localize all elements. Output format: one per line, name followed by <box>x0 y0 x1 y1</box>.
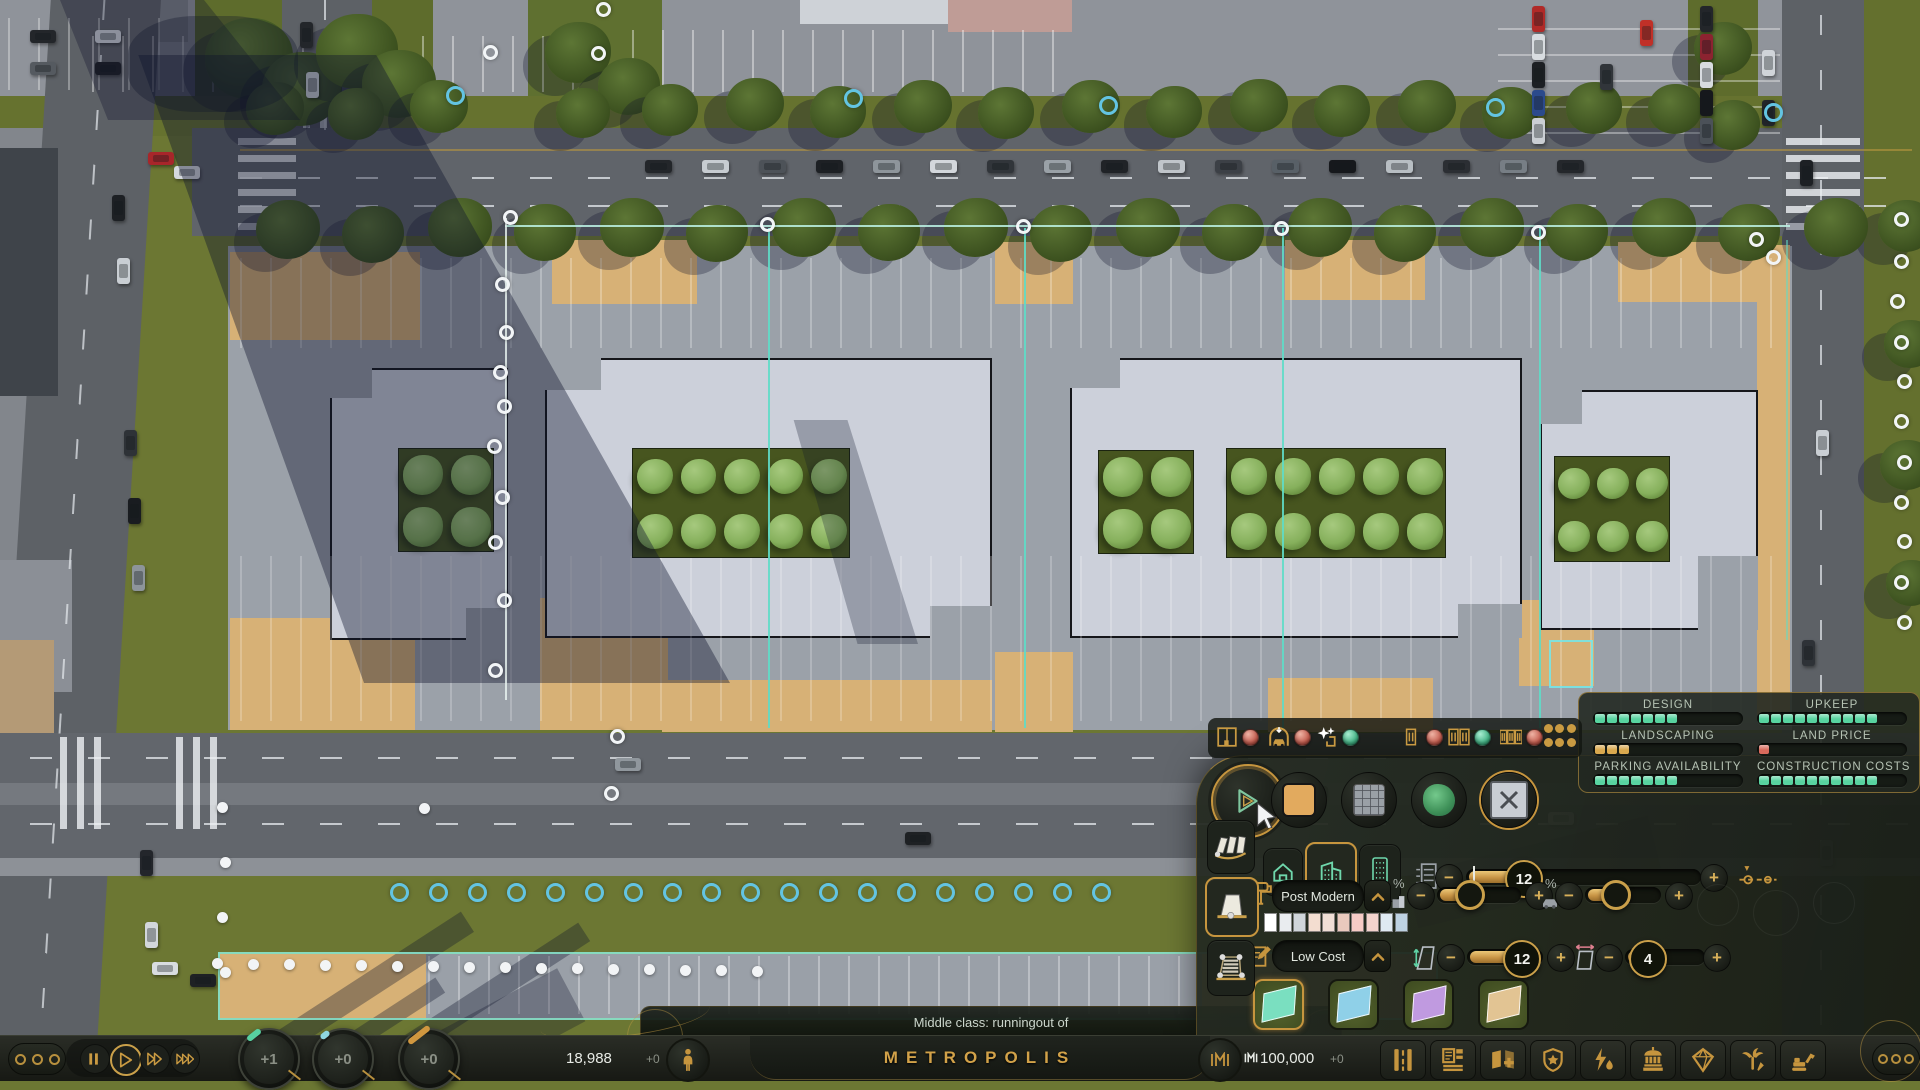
landmarks-button[interactable] <box>1680 1040 1726 1080</box>
design-minus-button[interactable]: − <box>1407 882 1435 910</box>
red-toggle-indicator <box>1242 729 1259 746</box>
toolbar-option-plot[interactable] <box>1216 726 1259 748</box>
stat-land-price: LAND PRICE <box>1757 730 1907 756</box>
parked-car <box>1443 160 1470 173</box>
rate-knob[interactable]: +0 <box>312 1028 374 1090</box>
public-safety-button[interactable] <box>1530 1040 1576 1080</box>
bush-icon <box>637 514 673 550</box>
public-safety-icon <box>1540 1047 1566 1073</box>
floors-slider[interactable] <box>1466 869 1701 885</box>
roads-button[interactable] <box>1380 1040 1426 1080</box>
node-handle-white[interactable] <box>493 365 508 380</box>
node-handle-cyan[interactable] <box>780 883 799 902</box>
node-handle-dot[interactable] <box>752 966 763 977</box>
node-handle-cyan[interactable] <box>897 883 916 902</box>
bush-icon <box>1151 509 1190 548</box>
toolbar-option-building-single[interactable] <box>1400 726 1443 748</box>
palette-swatch[interactable] <box>1351 913 1364 932</box>
node-handle-white[interactable] <box>497 399 512 414</box>
tree-icon <box>642 84 698 136</box>
apps-grid-dot-icon <box>1567 724 1576 733</box>
center-line <box>240 149 1912 151</box>
density-minus-button[interactable]: − <box>1437 944 1465 972</box>
parked-car <box>1557 160 1584 173</box>
node-handle-white[interactable] <box>1749 232 1764 247</box>
left-menu-button[interactable] <box>8 1043 66 1075</box>
zoning-icon <box>1440 1047 1466 1073</box>
construction-icon <box>1790 1047 1816 1073</box>
apps-grid-button[interactable] <box>1544 724 1576 750</box>
currency-icon <box>1210 1052 1230 1068</box>
node-handle-dot[interactable] <box>392 961 403 972</box>
node-handle-white[interactable] <box>1897 615 1912 630</box>
apps-grid-dot-icon <box>1544 724 1553 733</box>
plot-icon <box>1216 726 1238 748</box>
car <box>306 72 319 98</box>
bush-icon <box>1231 458 1267 494</box>
car <box>1700 118 1713 144</box>
construction-button[interactable] <box>1780 1040 1826 1080</box>
node-handle-dot[interactable] <box>644 964 655 975</box>
parked-car <box>1044 160 1071 173</box>
stat-label: CONSTRUCTION COSTS <box>1757 761 1907 773</box>
node-handle-white[interactable] <box>604 786 619 801</box>
stat-label: LANDSCAPING <box>1593 730 1743 742</box>
tree-icon <box>978 87 1034 139</box>
parked-car <box>645 160 672 173</box>
bush-icon <box>1275 458 1311 494</box>
tree-icon <box>600 198 664 257</box>
density-value-knob[interactable]: 12 <box>1503 940 1541 978</box>
node-handle-cyan[interactable] <box>975 883 994 902</box>
parked-car <box>1272 160 1299 173</box>
pad-notch <box>1070 358 1120 388</box>
zoning-button[interactable] <box>1430 1040 1476 1080</box>
node-handle-white[interactable] <box>1897 374 1912 389</box>
courtyard-garden <box>1226 448 1446 558</box>
zoning-list-tool-button[interactable] <box>1207 940 1255 996</box>
node-handle-cyan[interactable] <box>936 883 955 902</box>
node-handle-white[interactable] <box>1274 221 1289 236</box>
government-button[interactable] <box>1630 1040 1676 1080</box>
width-minus-button[interactable]: − <box>1595 944 1623 972</box>
plot-boundary-line[interactable] <box>505 225 1790 227</box>
tree-icon <box>1116 198 1180 257</box>
game-screen: { "stats_panel": { "items": [ {"label":"… <box>0 0 1920 1080</box>
plot-boundary-line[interactable] <box>1282 228 1284 728</box>
apps-grid-dot-icon <box>1567 738 1576 747</box>
stat-segment <box>1759 745 1769 754</box>
node-handle-cyan[interactable] <box>1486 98 1505 117</box>
parked-car <box>873 160 900 173</box>
rate-knob[interactable]: +0 <box>398 1028 460 1090</box>
bush-icon <box>1103 457 1142 496</box>
design-percent-label: % <box>1393 876 1405 891</box>
node-handle-cyan[interactable] <box>1099 96 1118 115</box>
toolbar-option-building-double[interactable] <box>1448 726 1491 748</box>
node-handle-cyan[interactable] <box>741 883 760 902</box>
stat-segment <box>1843 714 1853 723</box>
node-handle-dot[interactable] <box>217 912 228 923</box>
cost-dropdown[interactable]: Low Cost <box>1272 940 1364 972</box>
plot-options-toolbar <box>1208 718 1582 758</box>
stat-bar <box>1593 712 1743 725</box>
selection-rect[interactable] <box>1549 640 1593 688</box>
building-triple-icon <box>1500 726 1522 748</box>
city-name-emblem: METROPOLIS <box>750 1036 1210 1080</box>
bush-icon <box>724 459 760 495</box>
width-plus-button[interactable]: + <box>1703 944 1731 972</box>
plot-width-icon <box>1573 942 1597 974</box>
bush-icon <box>1231 513 1267 549</box>
parked-car <box>1215 160 1242 173</box>
apps-grid-dot-icon <box>1544 738 1553 747</box>
node-handle-cyan[interactable] <box>663 883 682 902</box>
stat-segment <box>1855 776 1865 785</box>
pad-notch <box>330 368 372 398</box>
car <box>1532 6 1545 32</box>
stat-segment <box>1771 714 1781 723</box>
car <box>1532 34 1545 60</box>
bush-icon <box>681 459 717 495</box>
car <box>1762 50 1775 76</box>
node-handle-dot[interactable] <box>716 965 727 976</box>
plot-swatch-button[interactable] <box>1328 979 1379 1030</box>
concrete-texture-button[interactable] <box>1341 772 1397 828</box>
decoration-icon <box>1316 726 1338 748</box>
build-menu-tiles <box>1380 1036 1840 1081</box>
node-handle-cyan[interactable] <box>819 883 838 902</box>
single-plot-tool-button[interactable] <box>1205 877 1259 937</box>
node-handle-white[interactable] <box>1766 250 1781 265</box>
bush-icon <box>1636 521 1668 553</box>
dot-icon <box>32 1054 43 1065</box>
stat-label: UPKEEP <box>1757 699 1907 711</box>
stat-segment <box>1831 776 1841 785</box>
tree-icon <box>428 198 492 257</box>
plot-boundary-line[interactable] <box>768 228 770 728</box>
palette-swatch[interactable] <box>1293 913 1306 932</box>
node-handle-white[interactable] <box>497 593 512 608</box>
bush-icon <box>1558 521 1590 553</box>
node-handle-white[interactable] <box>1897 534 1912 549</box>
rate-knob[interactable]: +1 <box>238 1028 300 1090</box>
stat-bar <box>1757 712 1907 725</box>
building-double-icon <box>1448 726 1470 748</box>
node-handle-cyan[interactable] <box>1092 883 1111 902</box>
node-handle-white[interactable] <box>495 277 510 292</box>
stripes-v <box>240 556 1785 721</box>
bush-icon <box>451 455 490 494</box>
green-toggle-indicator <box>1474 729 1491 746</box>
node-handle-cyan[interactable] <box>585 883 604 902</box>
node-handle-dot[interactable] <box>320 960 331 971</box>
car <box>190 974 216 987</box>
node-handle-white[interactable] <box>1894 335 1909 350</box>
node-handle-cyan[interactable] <box>546 883 565 902</box>
stat-segment <box>1819 714 1829 723</box>
car <box>1640 20 1653 46</box>
node-handle-cyan[interactable] <box>390 883 409 902</box>
landscaping-button[interactable] <box>1730 1040 1776 1080</box>
stat-upkeep: UPKEEP <box>1757 699 1907 725</box>
bush-icon <box>768 459 804 495</box>
node-handle-cyan[interactable] <box>844 89 863 108</box>
parked-car <box>816 160 843 173</box>
stat-segment <box>1655 776 1665 785</box>
plot-swatch-button[interactable] <box>1253 979 1304 1030</box>
plot-boundary-line[interactable] <box>1024 228 1026 728</box>
node-handle-dot[interactable] <box>680 965 691 976</box>
toolbar-option-building-triple[interactable] <box>1500 726 1543 748</box>
bush-icon <box>811 514 847 550</box>
stat-design: DESIGN <box>1593 699 1743 725</box>
node-handle-cyan[interactable] <box>507 883 526 902</box>
tree-icon <box>328 88 384 140</box>
pause-icon <box>86 1050 104 1068</box>
stat-segment <box>1855 714 1865 723</box>
clear-texture-button[interactable] <box>1481 772 1537 828</box>
car <box>1700 6 1713 32</box>
node-handle-white[interactable] <box>1894 414 1909 429</box>
grass-texture-button[interactable] <box>1411 772 1467 828</box>
bush-icon <box>1407 513 1443 549</box>
palette-swatch[interactable] <box>1264 913 1277 932</box>
node-handle-cyan[interactable] <box>468 883 487 902</box>
building <box>0 148 58 396</box>
stat-segment <box>1843 776 1853 785</box>
palette-swatch[interactable] <box>1380 913 1393 932</box>
landmarks-icon <box>1690 1047 1716 1073</box>
node-handle-white[interactable] <box>1894 212 1909 227</box>
style-dropdown[interactable]: Post Modern <box>1272 880 1364 912</box>
node-handle-cyan[interactable] <box>446 86 465 105</box>
money-button[interactable] <box>1198 1038 1242 1082</box>
parking-minus-button[interactable]: − <box>1555 882 1583 910</box>
stat-segment <box>1795 714 1805 723</box>
bush-icon <box>681 514 717 550</box>
stat-segment <box>1831 714 1841 723</box>
node-handle-cyan[interactable] <box>1764 103 1783 122</box>
stat-bar <box>1757 743 1907 756</box>
node-handle-dot[interactable] <box>464 962 475 973</box>
tree-icon <box>1648 84 1702 134</box>
parked-car <box>1386 160 1413 173</box>
concrete-tile-icon <box>1353 784 1385 816</box>
stat-segment <box>1771 776 1781 785</box>
node-handle-dot[interactable] <box>217 802 228 813</box>
stat-segment <box>1783 714 1793 723</box>
red-toggle-indicator <box>1526 729 1543 746</box>
node-handle-white[interactable] <box>1531 225 1546 240</box>
node-handle-white[interactable] <box>499 325 514 340</box>
node-handle-white[interactable] <box>1894 575 1909 590</box>
multi-plot-tool-button[interactable] <box>1207 820 1255 874</box>
palette-swatch[interactable] <box>1395 913 1408 932</box>
car <box>1800 160 1813 186</box>
toolbar-option-decoration[interactable] <box>1316 726 1359 748</box>
plot-swatch-button[interactable] <box>1403 979 1454 1030</box>
stat-segment <box>1759 776 1769 785</box>
stat-segment <box>1667 714 1677 723</box>
pad-notch <box>545 358 601 390</box>
node-handle-dot[interactable] <box>419 803 430 814</box>
utilities-button[interactable] <box>1580 1040 1626 1080</box>
node-handle-cyan[interactable] <box>702 883 721 902</box>
bush-icon <box>451 507 490 546</box>
toolbar-option-parking[interactable] <box>1268 726 1311 748</box>
car <box>1816 430 1829 456</box>
status-message: Middle class: runningout of <box>914 1015 1069 1030</box>
tree-icon <box>1460 198 1524 257</box>
car <box>148 152 174 165</box>
sand-texture-button[interactable] <box>1271 772 1327 828</box>
building-percent-icon <box>1391 895 1407 909</box>
car <box>112 195 125 221</box>
stat-label: PARKING AVAILABILITY <box>1593 761 1743 773</box>
car <box>1700 62 1713 88</box>
node-handle-white[interactable] <box>1894 495 1909 510</box>
plot-tile-icon <box>1261 985 1296 1023</box>
car <box>1532 90 1545 116</box>
tree-icon <box>1314 85 1370 137</box>
node-handle-white[interactable] <box>1894 254 1909 269</box>
stat-segment <box>1655 714 1665 723</box>
stripes-v <box>240 258 1785 348</box>
node-handle-dot[interactable] <box>536 963 547 974</box>
car <box>140 850 153 876</box>
car <box>128 498 141 524</box>
palette-swatch[interactable] <box>1322 913 1335 932</box>
design-knob[interactable] <box>1455 880 1485 910</box>
node-handle-white[interactable] <box>760 217 775 232</box>
node-handle-cyan[interactable] <box>1053 883 1072 902</box>
tree-icon <box>556 88 610 138</box>
node-handle-white[interactable] <box>503 210 518 225</box>
node-handle-cyan[interactable] <box>429 883 448 902</box>
style-dropdown-chevron-button[interactable] <box>1364 880 1391 912</box>
bush-icon <box>1597 468 1629 500</box>
plot-boundary-line[interactable] <box>1539 228 1541 728</box>
fast-forward-button[interactable] <box>140 1044 170 1074</box>
node-handle-dot[interactable] <box>500 962 511 973</box>
node-handle-dot[interactable] <box>284 959 295 970</box>
node-handle-cyan[interactable] <box>1014 883 1033 902</box>
car <box>152 962 178 975</box>
node-handle-dot[interactable] <box>428 961 439 972</box>
parked-car <box>1158 160 1185 173</box>
fastest-forward-button[interactable] <box>170 1044 200 1074</box>
node-handle-white[interactable] <box>1016 219 1031 234</box>
playback-cluster <box>66 1039 200 1077</box>
palette-swatch[interactable] <box>1366 913 1379 932</box>
car <box>174 166 200 179</box>
density-plus-button[interactable]: + <box>1547 944 1575 972</box>
mouse-pointer-icon <box>1255 802 1279 828</box>
car <box>30 30 56 43</box>
parked-car <box>930 160 957 173</box>
node-handle-dot[interactable] <box>572 963 583 974</box>
node-handle-white[interactable] <box>488 663 503 678</box>
parking-knob[interactable] <box>1601 880 1631 910</box>
courtyard-garden <box>632 448 850 558</box>
stat-segment <box>1643 714 1653 723</box>
stat-segment <box>1595 714 1605 723</box>
node-handle-white[interactable] <box>591 46 606 61</box>
node-handle-white[interactable] <box>495 490 510 505</box>
parking-plus-button[interactable]: + <box>1665 882 1693 910</box>
car <box>1700 90 1713 116</box>
bush-icon <box>1597 521 1629 553</box>
plot-stats-panel: DESIGNUPKEEPLANDSCAPINGLAND PRICEPARKING… <box>1578 692 1920 793</box>
play-button[interactable] <box>110 1044 142 1076</box>
sand-tile-icon <box>1282 783 1316 817</box>
palette-swatch[interactable] <box>1308 913 1321 932</box>
parked-car <box>1101 160 1128 173</box>
plot-swatch-button[interactable] <box>1478 979 1529 1030</box>
palette-swatch[interactable] <box>1337 913 1350 932</box>
stat-segment <box>1867 714 1877 723</box>
width-value-knob[interactable]: 4 <box>1629 940 1667 978</box>
utilities-icon <box>1590 1047 1616 1073</box>
stat-landscaping: LANDSCAPING <box>1593 730 1743 756</box>
tree-icon <box>1146 86 1202 138</box>
plot-tile-icon <box>1486 985 1521 1023</box>
node-handle-dot[interactable] <box>356 960 367 971</box>
cost-dropdown-chevron-button[interactable] <box>1364 940 1391 972</box>
bush-icon <box>1558 468 1590 500</box>
tree-icon <box>944 198 1008 257</box>
node-handle-dot[interactable] <box>248 959 259 970</box>
node-handle-cyan[interactable] <box>858 883 877 902</box>
pause-button[interactable] <box>80 1044 110 1074</box>
node-handle-white[interactable] <box>1890 294 1905 309</box>
node-handle-cyan[interactable] <box>624 883 643 902</box>
car <box>1532 118 1545 144</box>
stat-segment <box>1807 714 1817 723</box>
stat-segment <box>1819 776 1829 785</box>
car <box>95 62 121 75</box>
node-handle-white[interactable] <box>1897 455 1912 470</box>
stat-segment <box>1759 714 1769 723</box>
green-toggle-indicator <box>1342 729 1359 746</box>
node-handle-dot[interactable] <box>220 857 231 868</box>
car <box>1532 62 1545 88</box>
money-delta: +0 <box>1330 1052 1344 1066</box>
education-health-button[interactable] <box>1480 1040 1526 1080</box>
plot-tile-icon <box>1411 985 1446 1023</box>
bush-icon <box>1319 458 1355 494</box>
stat-segment <box>1619 714 1629 723</box>
stat-parking-availability: PARKING AVAILABILITY <box>1593 761 1743 787</box>
node-handle-white[interactable] <box>596 2 611 17</box>
node-handle-white[interactable] <box>488 535 503 550</box>
node-handle-dot[interactable] <box>220 967 231 978</box>
palette-swatch[interactable] <box>1279 913 1292 932</box>
node-handle-white[interactable] <box>610 729 625 744</box>
color-palette[interactable] <box>1264 913 1408 932</box>
plot-boundary-line[interactable] <box>1786 240 1788 640</box>
stat-label: DESIGN <box>1593 699 1743 711</box>
zebra-h <box>60 737 106 829</box>
money-amount: 100,000 <box>1260 1050 1314 1067</box>
node-handle-white[interactable] <box>483 45 498 60</box>
stripes-v <box>632 30 1074 92</box>
node-handle-dot[interactable] <box>608 964 619 975</box>
population-button[interactable] <box>666 1038 710 1082</box>
node-handle-white[interactable] <box>487 439 502 454</box>
bush-icon <box>724 514 760 550</box>
